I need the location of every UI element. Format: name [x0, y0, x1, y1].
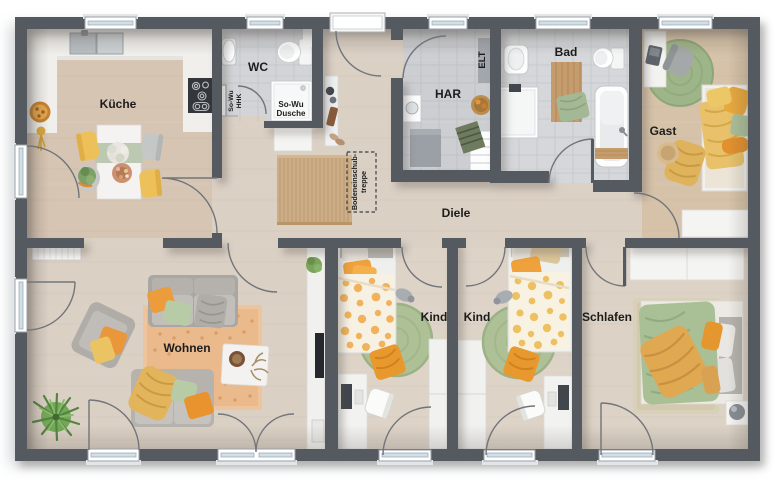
svg-text:Dusche: Dusche	[277, 109, 306, 118]
svg-text:Bodeneinschub-: Bodeneinschub-	[350, 153, 359, 210]
svg-text:So-Wu: So-Wu	[228, 90, 235, 111]
svg-text:Wohnen: Wohnen	[163, 341, 210, 355]
svg-text:Diele: Diele	[442, 206, 471, 220]
svg-text:ELT: ELT	[477, 51, 488, 68]
svg-text:Bad: Bad	[555, 45, 578, 59]
svg-text:Küche: Küche	[100, 97, 137, 111]
svg-text:HHK: HHK	[236, 94, 243, 109]
svg-text:Gast: Gast	[650, 124, 677, 138]
svg-text:Schlafen: Schlafen	[582, 310, 632, 324]
svg-text:Kind: Kind	[421, 310, 448, 324]
svg-text:WC: WC	[248, 60, 268, 74]
svg-text:Kind: Kind	[464, 310, 491, 324]
svg-text:So-Wu: So-Wu	[278, 100, 303, 109]
svg-text:treppe: treppe	[359, 171, 368, 193]
svg-text:HAR: HAR	[435, 87, 461, 101]
